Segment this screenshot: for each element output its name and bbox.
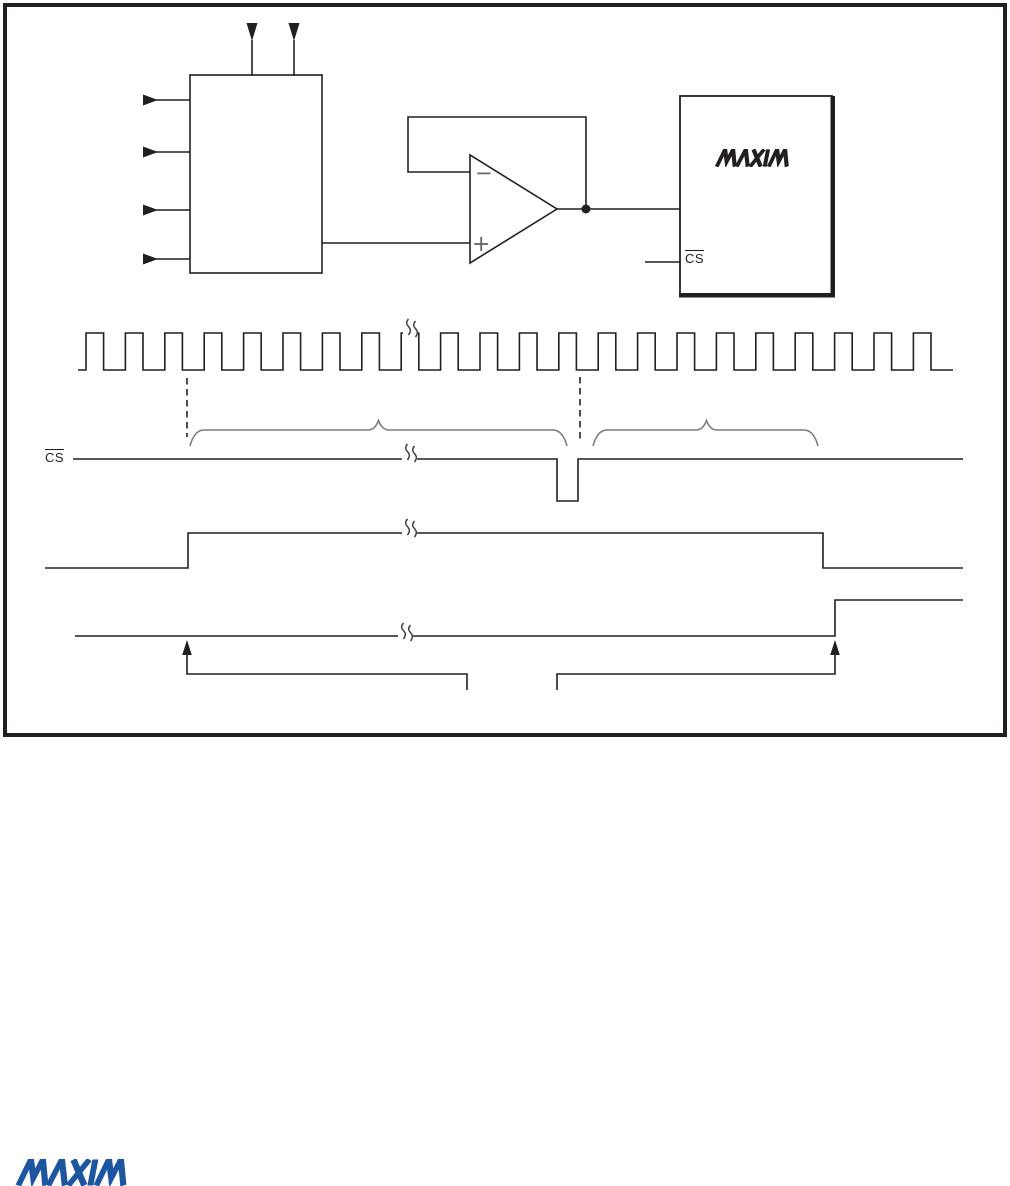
annotation-arrow-right [557,640,840,690]
break-icon [403,317,418,352]
break-icon [402,442,417,477]
input-arrow-icon [143,205,190,216]
annotation-arrow-left [182,640,467,690]
input-arrow-icon [143,147,190,158]
brace-right [593,421,818,447]
comparator-plus-label: + [472,232,490,257]
input-arrow-icon [143,95,190,106]
footer [0,740,1010,1186]
input-arrow-icon [143,254,190,265]
cs-signal-label: CS [45,450,64,465]
adc-chip [645,96,835,298]
comparator: − + [322,117,680,263]
chip-shadow-bottom [679,293,835,298]
break-icon [398,621,413,656]
input-block [190,75,322,273]
clock-waveform [78,333,953,370]
maxim-logo-footer [18,1160,128,1186]
cs-waveform [73,459,963,501]
data-waveform-1 [45,533,963,568]
break-icon [402,517,417,552]
comparator-minus-label: − [475,161,493,185]
chip-shadow-right [831,96,836,298]
circuit-timing-diagram: − + [0,0,1010,740]
junction-dot [582,205,591,214]
data-waveform-2 [75,600,963,636]
chip-cs-pin-label: CS [685,251,704,266]
brace-left [190,421,567,447]
top-arrow-icon [247,23,258,76]
top-arrow-icon [289,23,300,76]
feedback-wire [408,117,586,209]
